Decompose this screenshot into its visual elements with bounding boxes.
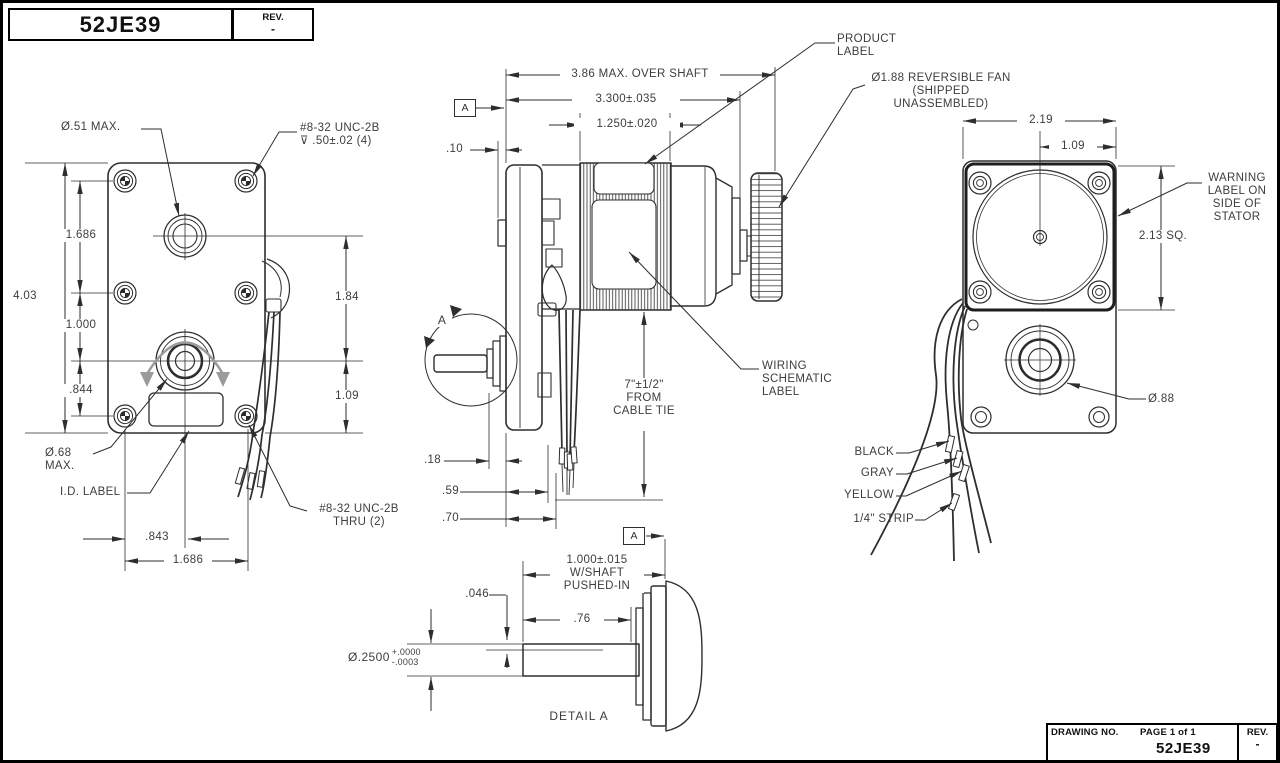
rear-dim-center: 1.09 [1049,140,1097,153]
front-dim-screw-span-h: 1.686 [164,554,212,567]
front-dim-hole-to-shaft: 1.84 [326,291,368,304]
wire-black-label: BLACK [848,446,894,459]
title-block-bottom-main: DRAWING NO. PAGE 1 of 1 52JE39 [1048,725,1239,760]
front-dim-screw-span-v: 1.686 [60,229,102,242]
side-dim-over-shaft: 3.86 MAX. OVER SHAFT [560,68,720,81]
front-dim-shaft-to-screw: .844 [60,384,102,397]
detail-shaft-dia: Ø.2500 +.0000-.0003 [348,647,421,668]
front-dim-shaft-to-bottom: 1.09 [326,390,368,403]
front-dim-screw-to-center: .843 [135,531,179,544]
detail-dim-step: .046 [453,588,489,601]
side-dim-body: 3.300±.035 [572,93,680,106]
page-label: PAGE 1 of 1 [1140,727,1196,738]
drawing-no-label: DRAWING NO. [1051,727,1119,738]
side-dim-plate: .10 [433,143,463,156]
wire-gray-label: GRAY [848,467,894,480]
drawing-number-bottom: 52JE39 [1156,740,1211,757]
datum-flag-a-detail: A [623,527,645,545]
side-view-geometry [424,163,782,495]
rear-dim-width: 2.19 [1017,114,1065,127]
rev-value-bottom: - [1256,738,1260,750]
shaft-dia-tol-plus: +.0000-.0003 [392,647,421,668]
wire-strip-label: 1/4" STRIP [846,513,914,526]
front-tapped-holes-label: #8-32 UNC-2B ⊽ .50±.02 (4) [300,122,410,148]
front-dim-screw-to-shaft: 1.000 [58,319,104,332]
front-id-label: I.D. LABEL [60,486,144,499]
rear-dim-square: 2.13 SQ. [1132,230,1194,243]
front-thru-holes-label: #8-32 UNC-2B THRU (2) [308,503,410,529]
front-hub-dia-label: Ø.68 MAX. [45,447,97,473]
front-dim-height: 4.03 [6,290,44,303]
rear-view-geometry [871,131,1116,561]
fan-callout: Ø1.88 REVERSIBLE FAN (SHIPPED UNASSEMBLE… [864,72,1018,111]
detail-title: DETAIL A [534,710,624,723]
product-label-callout: PRODUCT LABEL [837,33,921,59]
front-hole-dia-label: Ø.51 MAX. [61,121,145,134]
wire-yellow-label: YELLOW [841,489,894,502]
detail-circle-marker: A [432,314,452,327]
title-block-top-rev: REV. - [232,8,314,41]
side-dim-tie1: .59 [427,485,459,498]
title-block-top: 52JE39 [8,8,233,41]
detail-dim-length: 1.000±.015 W/SHAFT PUSHED-IN [550,554,644,593]
cable-tie-callout: 7"±1/2" FROM CABLE TIE [600,379,688,418]
detail-dim-exposed: .76 [560,613,604,626]
shaft-dia-value: Ø.2500 [348,650,390,664]
datum-flag-a-top: A [454,99,476,117]
wiring-schematic-callout: WIRING SCHEMATIC LABEL [762,360,858,399]
front-view-geometry [108,163,363,548]
side-dim-tie2: .70 [427,512,459,525]
title-block-bottom-rev: REV. - [1239,725,1276,760]
rear-dim-hub: Ø.88 [1148,393,1196,406]
rev-value: - [271,23,275,35]
warning-label-callout: WARNING LABEL ON SIDE OF STATOR [1201,172,1273,224]
side-dim-stator: 1.250±.020 [574,118,680,131]
side-dim-hub: .18 [409,454,441,467]
drawing-number: 52JE39 [80,12,162,38]
title-block-bottom: DRAWING NO. PAGE 1 of 1 52JE39 REV. - [1046,723,1278,762]
drawing-sheet: 52JE39 REV. - DRAWING NO. PAGE 1 of 1 52… [0,0,1280,763]
